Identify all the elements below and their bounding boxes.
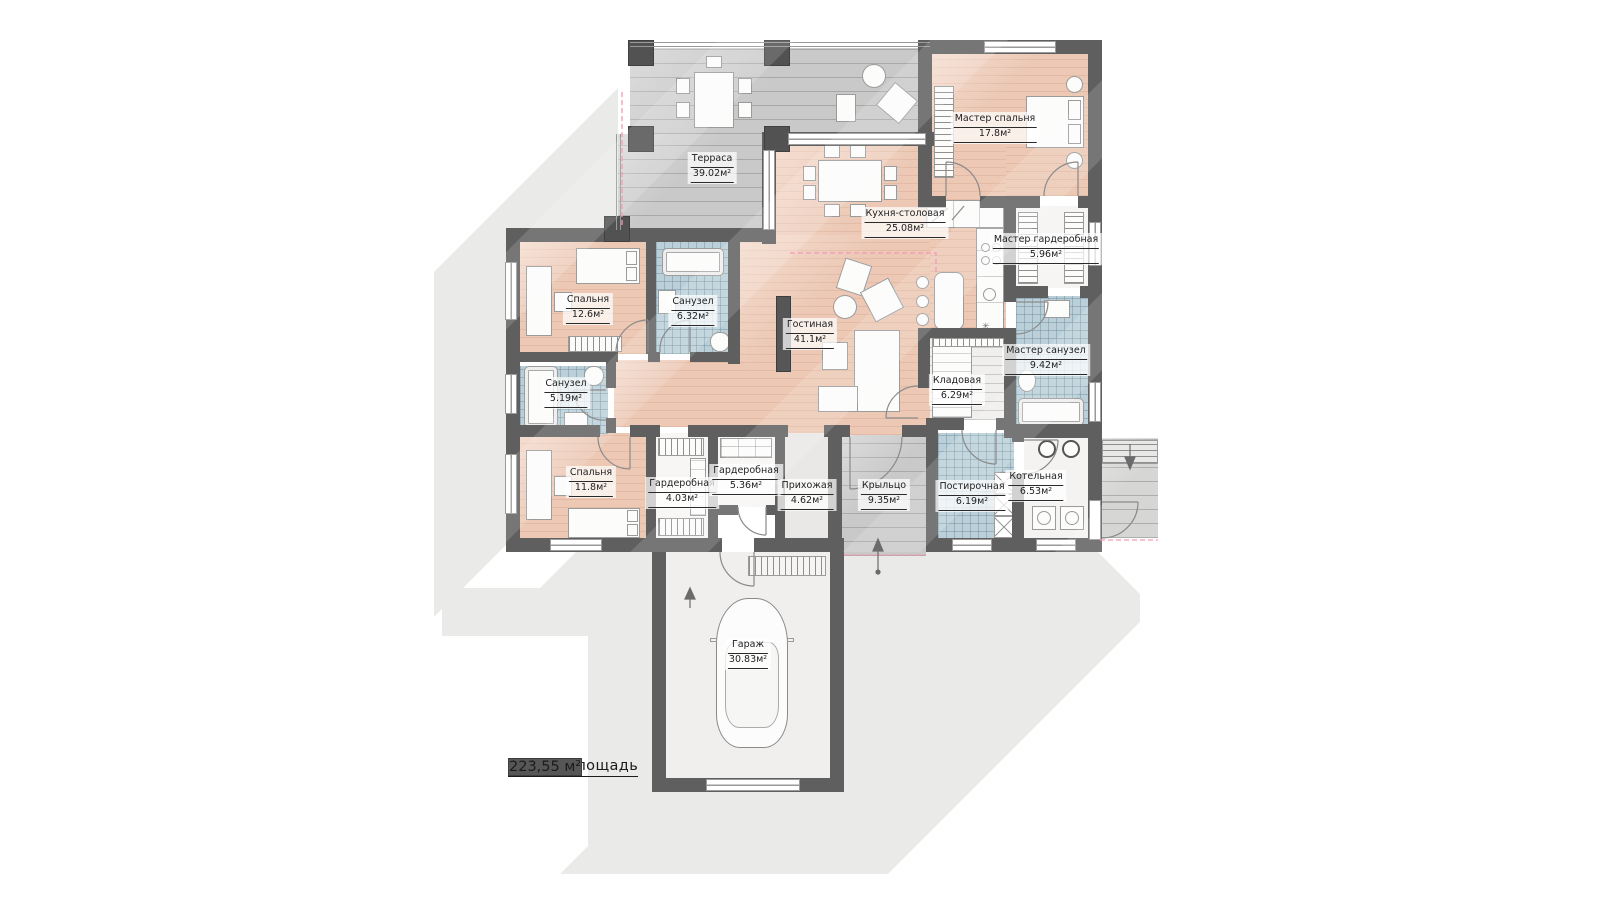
- room-label-bathroom1: Санузел 6.32м²: [668, 295, 717, 327]
- room-name: Гардеробная: [712, 465, 780, 480]
- room-area: 9.35м²: [861, 495, 907, 510]
- room-label-bathroom2: Санузел 5.19м²: [541, 377, 590, 409]
- door-arc: [886, 386, 918, 418]
- total-area-value: 223,55 м²: [508, 758, 582, 776]
- floor-plan-canvas: ✳: [0, 0, 1600, 900]
- door-arc: [738, 507, 766, 535]
- room-name: Гостиная: [786, 319, 834, 334]
- door-arc: [946, 162, 980, 196]
- room-area: 4.62м²: [781, 495, 834, 510]
- side-entry-arrow-head: [1125, 457, 1135, 469]
- room-label-garage: Гараж 30.83м²: [725, 638, 771, 670]
- room-name: Терраса: [691, 153, 734, 168]
- room-name: Крыльцо: [861, 480, 907, 495]
- room-label-master-bedroom: Мастер спальня 17.8м²: [951, 112, 1040, 144]
- room-label-pantry: Кладовая 6.29м²: [929, 374, 985, 406]
- room-name: Гараж: [728, 639, 768, 654]
- room-area: 30.83м²: [728, 654, 768, 669]
- room-label-master-wardrobe: Мастер гардеробная 5.96м²: [990, 233, 1102, 265]
- room-area: 12.6м²: [566, 309, 610, 324]
- room-name: Кухня-столовая: [865, 208, 946, 223]
- room-name: Прихожая: [781, 480, 834, 495]
- room-area: 11.8м²: [569, 482, 613, 497]
- entry-arrow-dot: [876, 570, 880, 574]
- door-arc: [616, 320, 648, 352]
- room-area: 6.19м²: [938, 496, 1005, 511]
- room-area: 6.32м²: [671, 311, 714, 326]
- room-area: 6.29м²: [932, 390, 982, 405]
- room-label-laundry: Постирочная 6.19м²: [935, 480, 1008, 512]
- room-name: Кладовая: [932, 375, 982, 390]
- room-label-porch: Крыльцо 9.35м²: [858, 479, 910, 511]
- room-label-bedroom2: Спальня 11.8м²: [566, 466, 616, 498]
- room-label-wardrobe2: Гардеробная 5.36м²: [709, 464, 783, 496]
- door-arc: [598, 437, 630, 469]
- room-name: Санузел: [671, 296, 714, 311]
- door-arc: [1024, 440, 1058, 474]
- room-label-kitchen: Кухня-столовая 25.08м²: [862, 207, 949, 239]
- room-label-boiler-room: Котельная 6.53м²: [1005, 470, 1066, 502]
- room-name: Мастер санузел: [1005, 345, 1087, 360]
- room-area: 6.53м²: [1008, 486, 1063, 501]
- room-label-living: Гостиная 41.1м²: [783, 318, 837, 350]
- room-area: 5.96м²: [993, 249, 1099, 264]
- room-area: 17.8м²: [954, 128, 1037, 143]
- room-area: 5.19м²: [544, 393, 587, 408]
- door-arc: [720, 552, 754, 586]
- door-arc: [1102, 502, 1138, 538]
- room-name: Спальня: [566, 294, 610, 309]
- room-label-wardrobe1: Гардеробная 4.03м²: [645, 477, 719, 509]
- room-name: Санузел: [544, 378, 587, 393]
- zone-dash-kitchen: [790, 253, 936, 272]
- plan-annotations: [0, 0, 1600, 900]
- room-area: 9.42м²: [1005, 360, 1087, 375]
- room-label-master-bath: Мастер санузел 9.42м²: [1002, 344, 1090, 376]
- door-arc: [1044, 162, 1078, 196]
- door-arc: [962, 430, 996, 464]
- room-name: Спальня: [569, 467, 613, 482]
- room-name: Котельная: [1008, 471, 1063, 486]
- room-name: Гардеробная: [648, 478, 716, 493]
- room-area: 25.08м²: [865, 223, 946, 238]
- room-name: Постирочная: [938, 481, 1005, 496]
- door-arc: [1016, 302, 1048, 334]
- garage-step-arrow-head: [685, 588, 695, 599]
- room-area: 5.36м²: [712, 480, 780, 495]
- room-name: Мастер гардеробная: [993, 234, 1099, 249]
- room-label-terrace: Терраса 39.02м²: [688, 152, 737, 184]
- room-label-entry-hall: Прихожая 4.62м²: [778, 479, 837, 511]
- total-area: Общая площадь 223,55 м²: [508, 758, 638, 777]
- room-area: 39.02м²: [691, 168, 734, 183]
- room-area: 41.1м²: [786, 334, 834, 349]
- entry-arrow-head: [873, 539, 883, 551]
- room-area: 4.03м²: [648, 493, 716, 508]
- room-label-bedroom1: Спальня 12.6м²: [563, 293, 613, 325]
- room-name: Мастер спальня: [954, 113, 1037, 128]
